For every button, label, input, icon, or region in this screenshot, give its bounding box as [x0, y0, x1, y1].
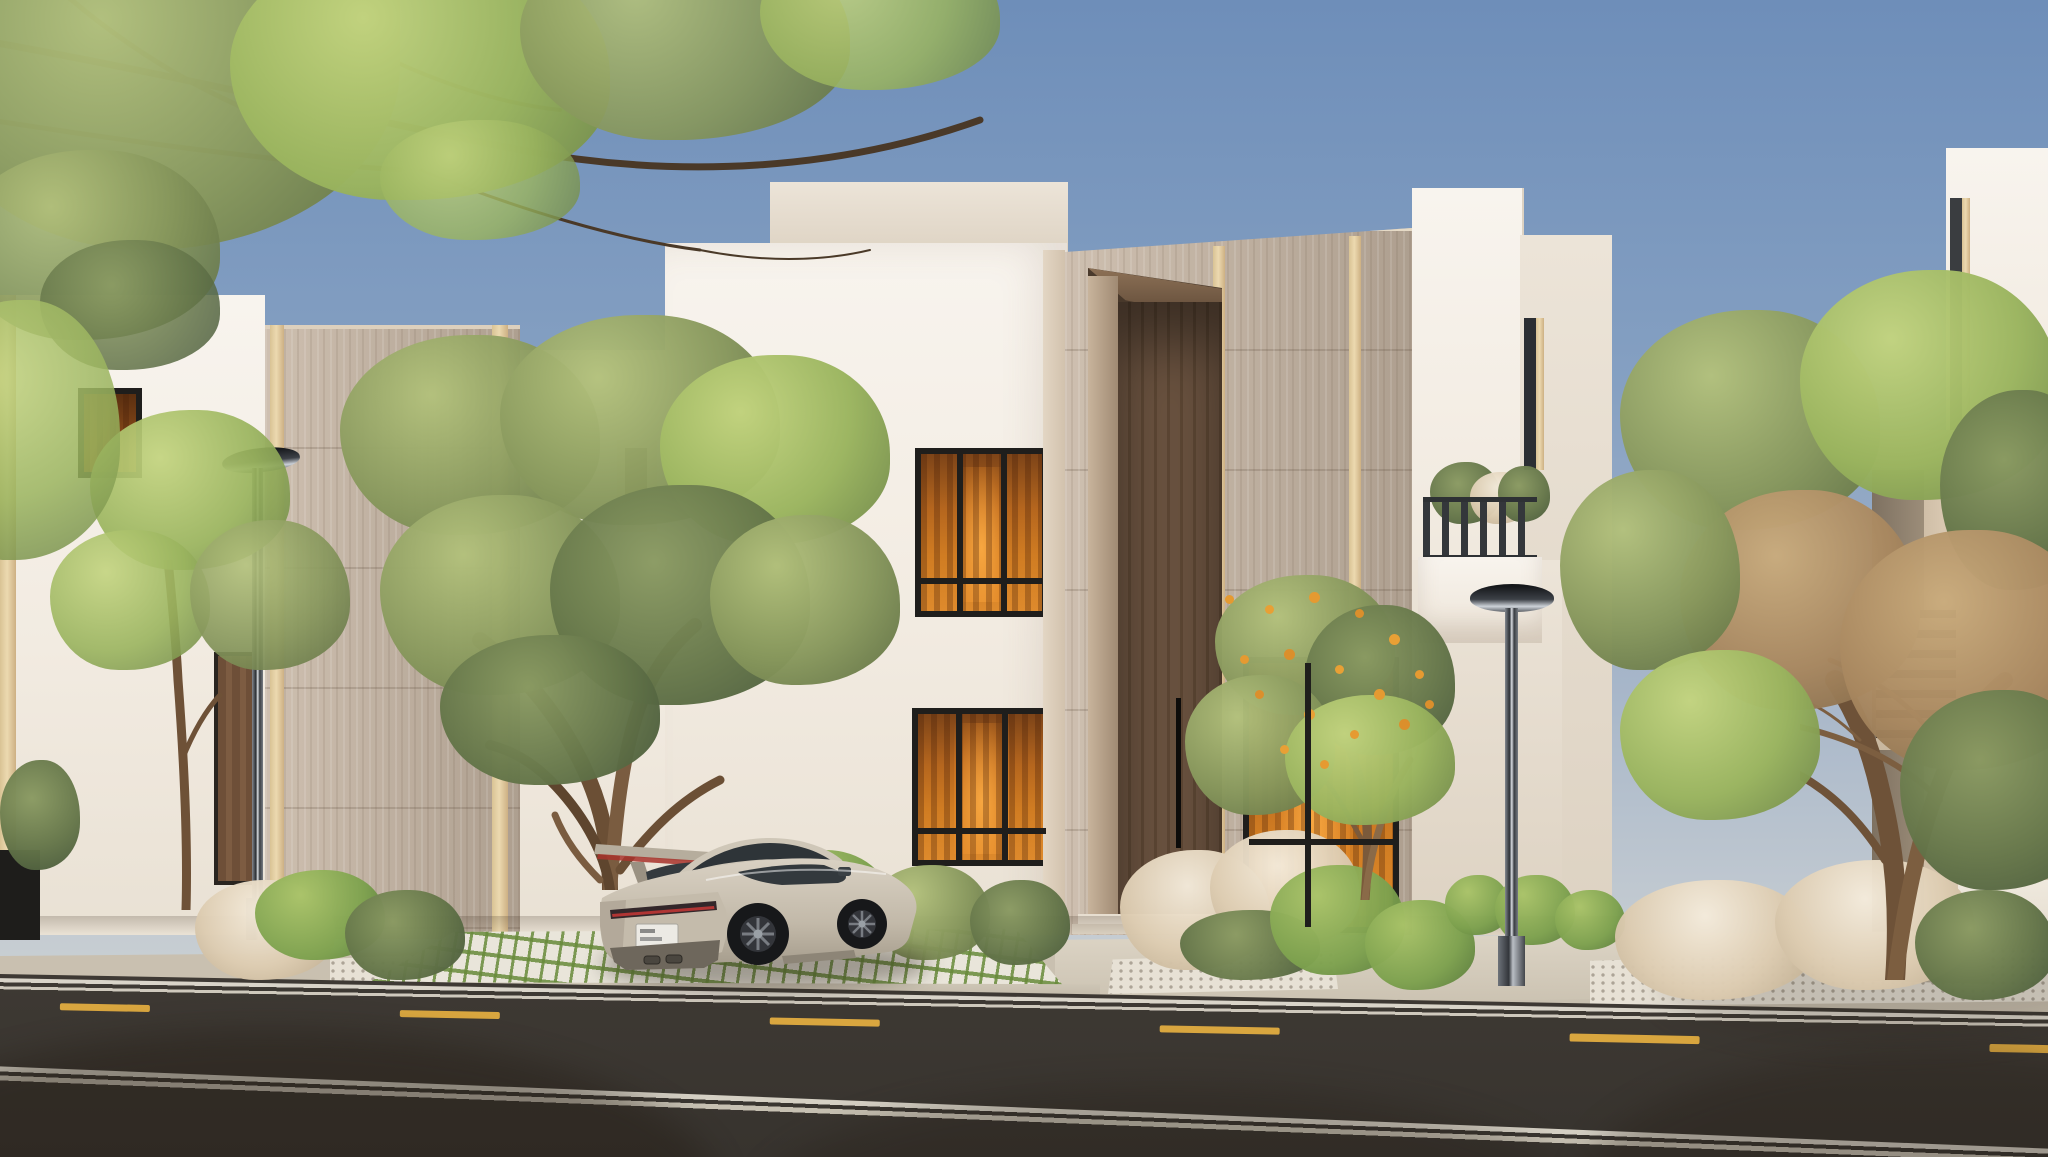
window-mullion	[918, 828, 1046, 834]
shrub-bed-left	[195, 860, 485, 990]
window-mullion	[1001, 454, 1007, 611]
foliage-clump	[1560, 470, 1740, 670]
tower-sunlit-side	[1043, 250, 1065, 935]
window-mullion	[1305, 663, 1311, 927]
street-lamp-pole	[1505, 608, 1518, 948]
yellow-dash	[1160, 1025, 1280, 1034]
shrub	[970, 880, 1070, 965]
citrus-tree-canopy	[1185, 565, 1455, 835]
portal-jamb	[1088, 276, 1118, 932]
window-mullion	[1249, 839, 1393, 845]
accent-strip	[1536, 318, 1544, 470]
window-mullion	[956, 714, 962, 860]
facade-slot	[1524, 318, 1536, 470]
shrub	[0, 760, 80, 870]
foliage-clump	[440, 635, 660, 785]
dark-plants-far-left	[0, 760, 80, 940]
yellow-dash	[400, 1010, 500, 1019]
window-mullion	[921, 578, 1042, 584]
rear-wheel	[727, 903, 789, 965]
yellow-dash	[60, 1003, 150, 1012]
window-mullion	[1002, 714, 1008, 860]
window-mullion	[957, 454, 963, 611]
overhanging-canopy	[0, 0, 1000, 580]
yellow-dash	[770, 1017, 880, 1026]
shrub	[345, 890, 465, 980]
porsche-style-sports-car	[586, 810, 926, 1000]
architectural-rendering	[0, 0, 2048, 1157]
foliage-clump	[380, 120, 580, 240]
balcony-railing	[1423, 497, 1537, 559]
street-lamp-base	[1498, 936, 1525, 986]
foliage-clump	[1620, 650, 1820, 820]
front-wheel	[837, 899, 887, 949]
right-tree-canopy	[1560, 270, 2048, 910]
orange-fruits	[1225, 595, 1234, 604]
